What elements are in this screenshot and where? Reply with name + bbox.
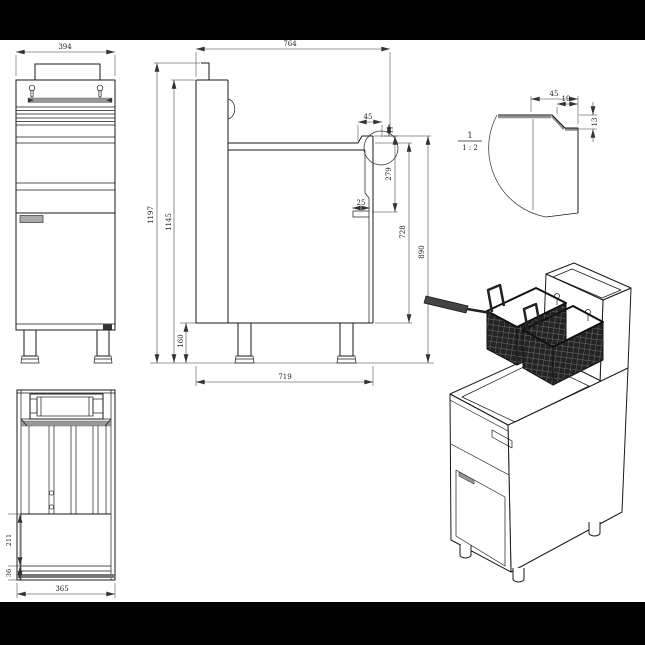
detail-step-dim: 19 [562,95,571,103]
leg-height-dim: 160 [177,334,185,347]
plan-bottom-strip [17,574,115,578]
backsplash-side [201,63,209,80]
pilot-hole [49,505,53,509]
pilot-hole [49,491,53,495]
detail-scale: 1 : 2 [462,144,478,152]
fryer-body-front [16,80,115,330]
front-legs [21,330,112,363]
plan-edge-dim: 36 [5,569,13,577]
bottom-black-bar [0,602,645,645]
foot [460,545,471,558]
basket-handle-loop [488,285,504,312]
detail-boundary-arc [489,115,546,217]
bracket-offset-dim: 25 [357,199,366,207]
front-width-dim: 394 [58,43,72,51]
louver-lines [16,107,115,190]
plan-view: 211 36 365 [5,390,115,598]
door-handle [20,216,43,223]
isometric-view [424,263,631,582]
drawing-canvas: 394 [0,0,645,645]
front-bracket [353,211,369,217]
backsplash-front [35,64,100,80]
detail-label: 1 [467,131,472,140]
basket-handle-rod [424,296,491,313]
back-panel-side [196,80,228,323]
plan-front-depth-dim: 211 [5,534,13,546]
lip-edge-dim: 13 [389,127,395,133]
keyhole-icon [97,85,103,97]
technical-drawing-page: 394 [0,0,645,645]
side-legs [235,323,356,363]
overall-height-dim: 1197 [147,206,155,224]
plan-band [21,421,111,426]
tank-baffles [29,426,106,514]
front-wall-inner [365,150,369,323]
detail-view: 45 19 13 1 1 : 2 [458,90,599,217]
side-view: 764 1197 1145 160 719 [147,40,434,386]
foot [513,568,524,582]
base-depth-dim: 719 [278,373,291,381]
top-black-bar [0,0,645,40]
body-height-dim: 1145 [165,213,173,231]
flue-box [30,394,103,419]
detail-lip-width-dim: 45 [550,90,559,98]
control-strip [28,98,112,103]
panel-drop-dim: 279 [385,167,393,180]
side-top-depth-dim: 764 [283,40,297,48]
detail-edge-dim: 13 [591,118,599,127]
door-latch [103,325,112,330]
front-height-dim: 728 [399,225,407,238]
worktop-side [228,136,373,150]
keyhole-icon [29,85,35,97]
flue-bump [228,99,235,119]
splash-right-face [600,288,631,382]
front-view: 394 [16,43,115,363]
lip-width-dim: 45 [364,113,373,121]
foot [589,522,600,536]
work-height-dim: 890 [418,245,426,258]
plan-width-dim: 365 [55,585,68,593]
